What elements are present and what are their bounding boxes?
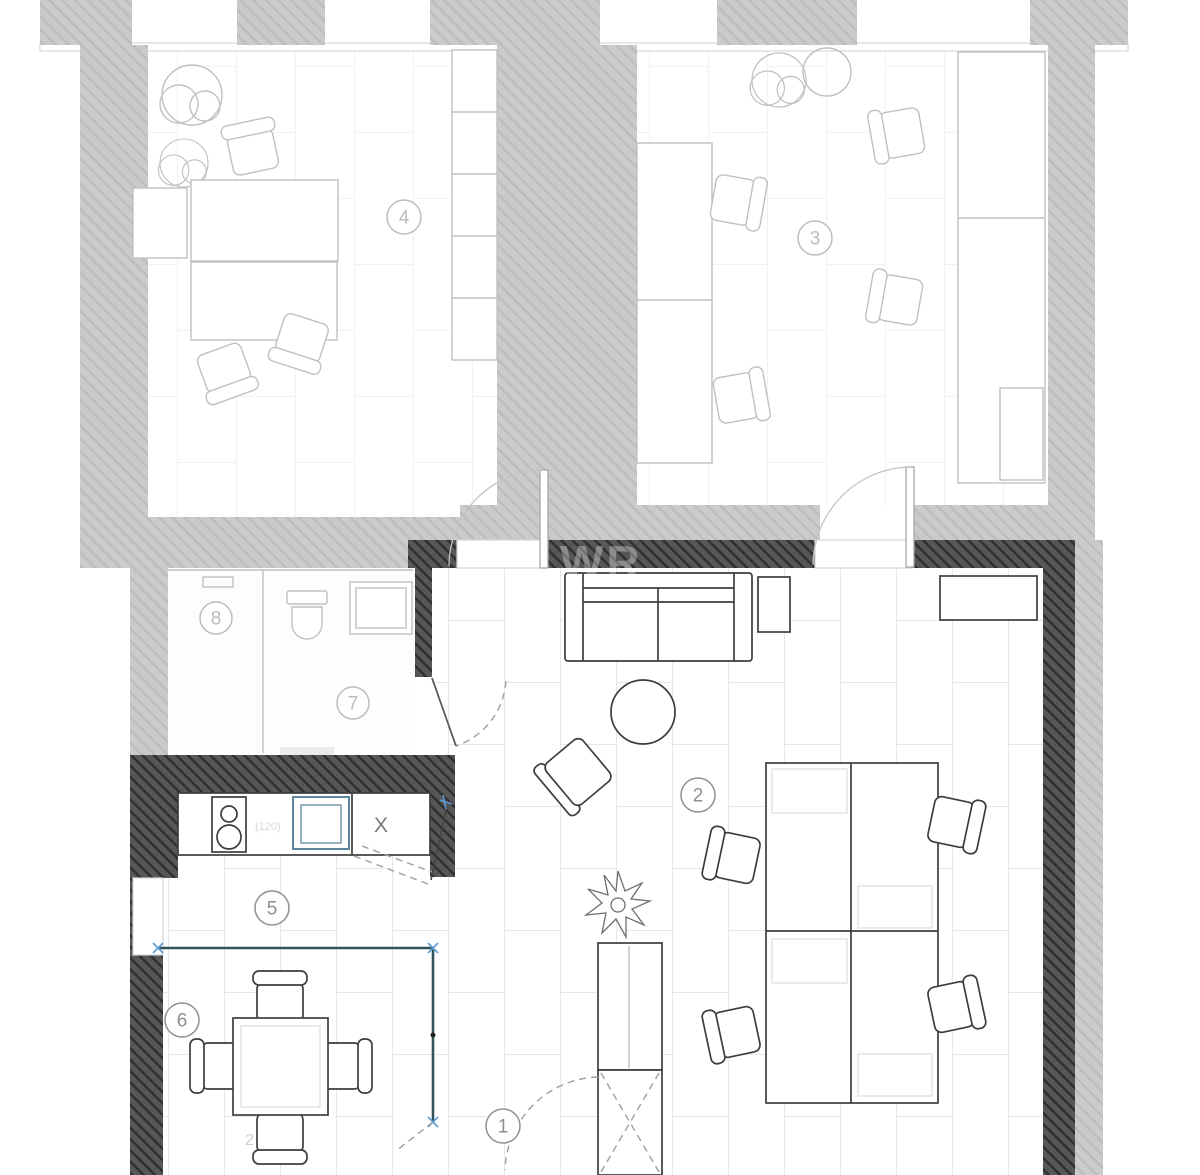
room4-wardrobe bbox=[452, 50, 497, 360]
wall-pier bbox=[430, 0, 600, 45]
wall-bathroom-west bbox=[130, 568, 168, 755]
door-sill-room3 bbox=[815, 540, 912, 568]
watermark: WR bbox=[560, 536, 643, 588]
wall-room3-south-right bbox=[912, 505, 1048, 540]
room-label-5: 5 bbox=[255, 891, 289, 925]
wall-dark-west bbox=[130, 755, 163, 1175]
room-label-8: 8 bbox=[200, 602, 232, 634]
room-label-7: 7 bbox=[337, 687, 369, 719]
wall-room3-south-left bbox=[637, 505, 820, 540]
wall-divider-rooms-3-4 bbox=[497, 45, 637, 540]
wall-west-room4 bbox=[80, 45, 148, 517]
wall-dark-east-top bbox=[912, 540, 1075, 568]
svg-text:1: 1 bbox=[498, 1117, 509, 1138]
wall-dark-kitchen-east bbox=[430, 755, 455, 877]
workstation-cluster bbox=[766, 763, 938, 1103]
wall-east-room3 bbox=[1048, 42, 1095, 540]
wall-room4-south-band bbox=[80, 517, 460, 568]
wall-dark-kitchen-north bbox=[148, 755, 430, 793]
svg-text:4: 4 bbox=[399, 208, 410, 229]
svg-text:6: 6 bbox=[177, 1011, 188, 1032]
wall-east-outer-strip bbox=[1075, 540, 1103, 1175]
room4-door-leaf bbox=[540, 470, 548, 568]
room-label-3: 3 bbox=[798, 221, 832, 255]
room3-desk-right bbox=[958, 52, 1045, 483]
wall-dark-bathroom-east bbox=[415, 568, 432, 677]
room3-desk-left bbox=[637, 143, 712, 463]
dining-table bbox=[233, 1018, 328, 1115]
wall-pier bbox=[237, 0, 325, 45]
west-wall-niche bbox=[133, 878, 163, 955]
svg-text:5: 5 bbox=[267, 899, 278, 920]
bathroom-threshold bbox=[280, 747, 334, 755]
svg-text:2: 2 bbox=[693, 786, 704, 807]
window-ledge bbox=[940, 576, 1037, 620]
room-label-4: 4 bbox=[387, 200, 421, 234]
room-label-6: 6 bbox=[165, 1003, 199, 1037]
wall-pier bbox=[717, 0, 857, 45]
room-label-2: 2 bbox=[681, 778, 715, 812]
wall-notch bbox=[460, 505, 497, 540]
shower bbox=[350, 582, 412, 634]
coffee-table bbox=[611, 680, 675, 744]
room4-cabinet bbox=[133, 188, 187, 258]
svg-text:8: 8 bbox=[211, 609, 222, 630]
floor-plan-canvas: (120) X bbox=[0, 0, 1200, 1175]
side-table bbox=[758, 577, 790, 632]
svg-text:7: 7 bbox=[348, 694, 359, 715]
floor-plan-svg: (120) X bbox=[0, 0, 1200, 1175]
door-sill-room4 bbox=[457, 540, 545, 568]
wall-dark-kitchen-west-pad bbox=[163, 755, 178, 878]
stove-dimension-note: (120) bbox=[255, 821, 281, 833]
wall-dark-east bbox=[1043, 568, 1075, 1175]
room4-desk-a bbox=[191, 180, 338, 261]
room-label-1: 1 bbox=[486, 1109, 520, 1143]
room3-door-leaf bbox=[906, 467, 914, 567]
kitchen-x-mark: X bbox=[374, 814, 388, 837]
pencil-mark: 2 bbox=[245, 1132, 254, 1149]
wall-pier bbox=[40, 0, 132, 45]
svg-text:3: 3 bbox=[810, 229, 821, 250]
sink-icon bbox=[293, 797, 349, 849]
wall-pier bbox=[1030, 0, 1128, 45]
